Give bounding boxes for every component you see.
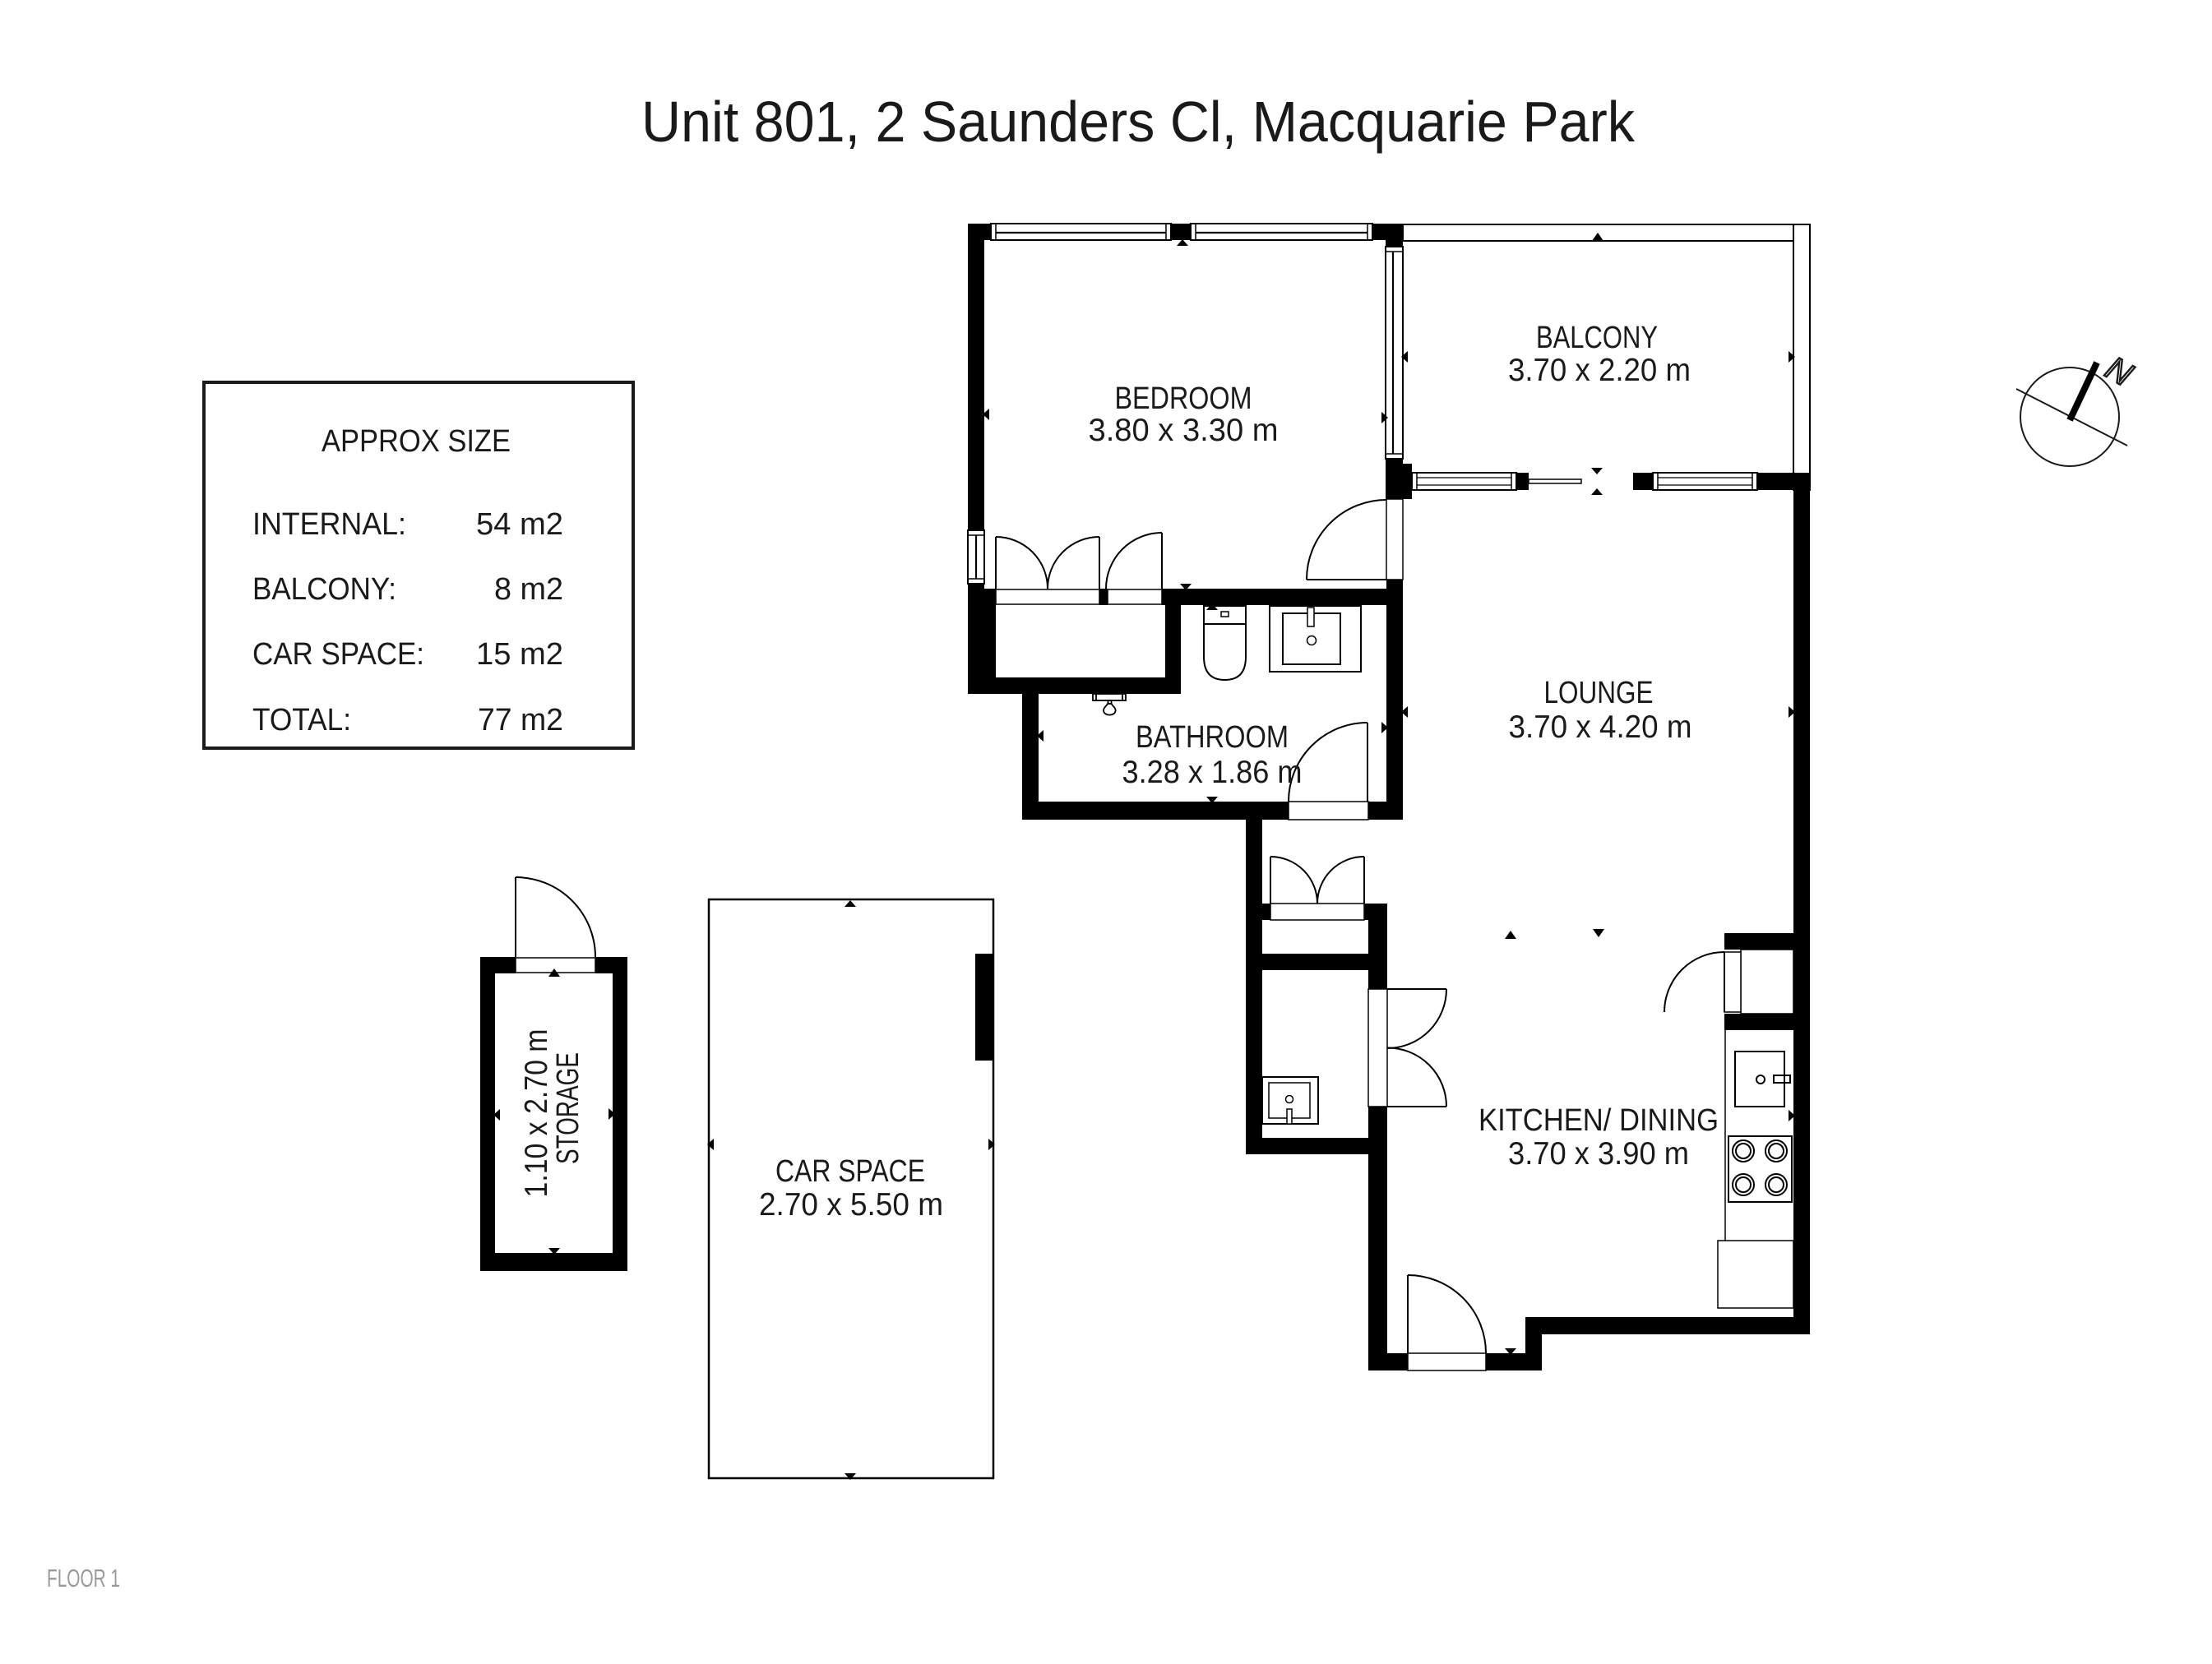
svg-text:8 m2: 8 m2	[494, 572, 563, 607]
svg-text:APPROX SIZE: APPROX SIZE	[322, 424, 511, 459]
svg-text:3.80 x 3.30 m: 3.80 x 3.30 m	[1089, 413, 1279, 448]
svg-text:1.10 x 2.70 m: 1.10 x 2.70 m	[519, 1029, 554, 1198]
svg-text:3.70 x 3.90 m: 3.70 x 3.90 m	[1508, 1136, 1689, 1172]
svg-text:CAR SPACE: CAR SPACE	[775, 1154, 925, 1189]
svg-text:BALCONY:: BALCONY:	[252, 572, 396, 607]
svg-text:2.70 x 5.50 m: 2.70 x 5.50 m	[759, 1187, 943, 1223]
svg-text:54 m2: 54 m2	[476, 507, 563, 542]
svg-text:CAR SPACE:: CAR SPACE:	[252, 637, 424, 672]
svg-text:3.70 x 2.20 m: 3.70 x 2.20 m	[1508, 353, 1691, 388]
svg-text:STORAGE: STORAGE	[551, 1052, 585, 1164]
svg-text:Unit 801, 2 Saunders Cl, Macqu: Unit 801, 2 Saunders Cl, Macquarie Park	[641, 90, 1636, 154]
svg-text:3.28 x 1.86 m: 3.28 x 1.86 m	[1122, 755, 1303, 790]
svg-text:LOUNGE: LOUNGE	[1544, 676, 1654, 710]
svg-text:BATHROOM: BATHROOM	[1136, 720, 1289, 755]
svg-text:TOTAL:: TOTAL:	[252, 703, 351, 737]
svg-text:FLOOR 1: FLOOR 1	[47, 1564, 120, 1592]
svg-text:BALCONY: BALCONY	[1536, 321, 1658, 355]
svg-text:15 m2: 15 m2	[476, 637, 563, 672]
svg-text:INTERNAL:: INTERNAL:	[252, 507, 406, 542]
svg-text:77 m2: 77 m2	[478, 703, 563, 737]
svg-text:KITCHEN/ DINING: KITCHEN/ DINING	[1479, 1103, 1719, 1138]
svg-text:BEDROOM: BEDROOM	[1115, 381, 1252, 416]
svg-text:3.70 x 4.20 m: 3.70 x 4.20 m	[1509, 710, 1692, 745]
